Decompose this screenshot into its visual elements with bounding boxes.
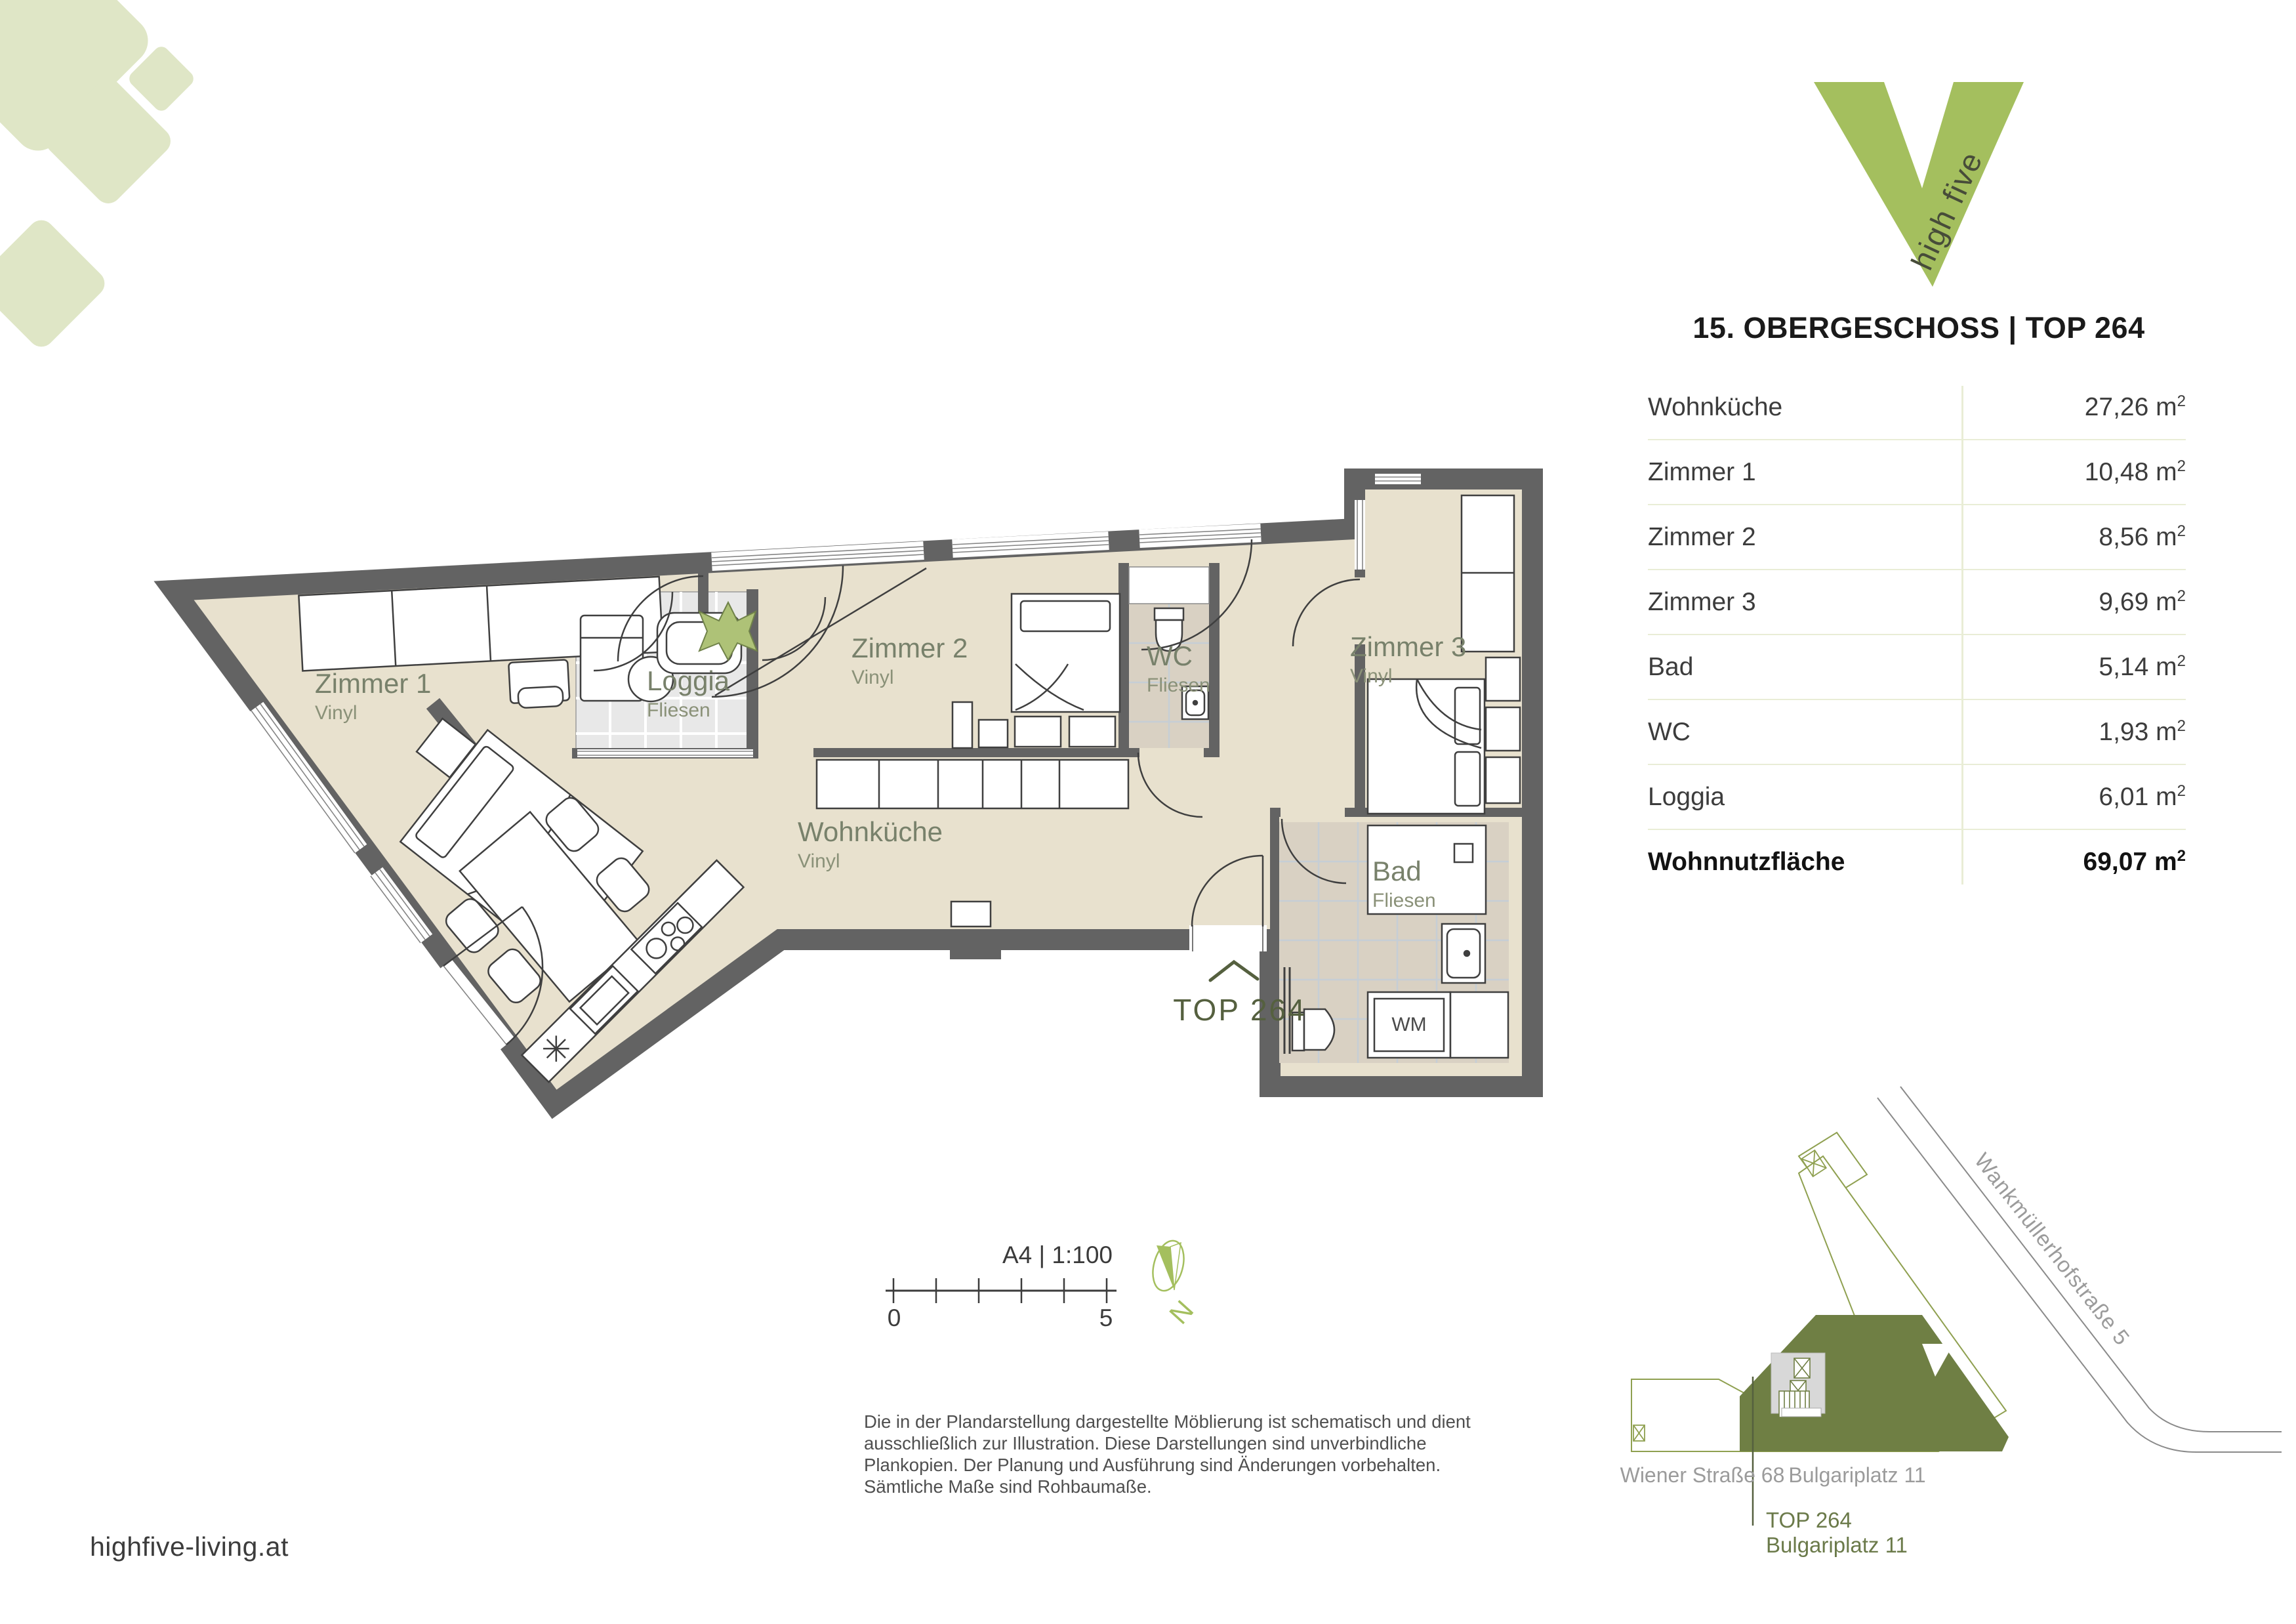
table-divider <box>1961 386 1963 885</box>
bath-sink-icon <box>1442 924 1485 983</box>
row-value: 69,07 m2 <box>2083 847 2186 877</box>
page-title: 15. OBERGESCHOSS | TOP 264 <box>1640 311 2198 345</box>
scale-start-label: 0 <box>882 1304 906 1332</box>
unit-caret-icon <box>1210 962 1258 980</box>
table-row: Bad 5,14 m2 <box>1648 634 2186 699</box>
area-table: Wohnküche 27,26 m2 Zimmer 1 10,48 m2 Zim… <box>1648 375 2186 894</box>
row-value: 1,93 m2 <box>2099 717 2186 747</box>
building-right-label: Bulgariplatz 11 <box>1771 1463 1943 1488</box>
callout-address-label: Bulgariplatz 11 <box>1766 1533 1908 1558</box>
table-row: Loggia 6,01 m2 <box>1648 764 2186 829</box>
room-label-wc: WCFliesen <box>1147 640 1210 697</box>
washing-machine-label: WM <box>1368 1014 1450 1036</box>
callout-unit-label: TOP 264 <box>1766 1508 1852 1533</box>
diamond-decor-icon <box>0 0 197 352</box>
building-plate <box>1771 1353 1825 1417</box>
sheet-scale-label: A4 | 1:100 <box>918 1241 1113 1269</box>
scale-end-label: 5 <box>1094 1304 1118 1332</box>
room-label-loggia: LoggiaFliesen <box>647 665 729 722</box>
room-label-zimmer1: Zimmer 1Vinyl <box>315 668 431 724</box>
table-row: Zimmer 2 8,56 m2 <box>1648 504 2186 569</box>
row-label: Bad <box>1648 653 1693 682</box>
plan-sheet: high five 15. OBERGESCHOSS | TOP 264 Woh… <box>0 0 2296 1624</box>
north-compass-icon <box>1148 1238 1189 1295</box>
website-link: highfive-living.at <box>90 1531 289 1562</box>
row-label: Wohnnutzfläche <box>1648 848 1845 877</box>
table-row: Zimmer 1 10,48 m2 <box>1648 439 2186 504</box>
row-value: 8,56 m2 <box>2099 522 2186 552</box>
row-label: WC <box>1648 718 1691 747</box>
row-label: Zimmer 2 <box>1648 523 1756 552</box>
row-label: Zimmer 1 <box>1648 458 1756 487</box>
row-value: 10,48 m2 <box>2085 457 2186 487</box>
row-label: Wohnküche <box>1648 393 1782 422</box>
room-label-zimmer2: Zimmer 2Vinyl <box>851 633 968 689</box>
room-label-wohnkueche: WohnkücheVinyl <box>798 816 943 873</box>
unit-label: TOP 264 <box>1141 992 1338 1028</box>
building-left-label: Wiener Straße 68 <box>1612 1463 1792 1488</box>
table-row: Wohnküche 27,26 m2 <box>1648 375 2186 439</box>
room-label-bad: BadFliesen <box>1372 856 1436 912</box>
table-total-row: Wohnnutzfläche 69,07 m2 <box>1648 829 2186 894</box>
table-row: WC 1,93 m2 <box>1648 699 2186 764</box>
row-value: 5,14 m2 <box>2099 652 2186 682</box>
kitchen-cabinets <box>817 760 1128 808</box>
row-value: 27,26 m2 <box>2085 392 2186 422</box>
apartment-plan <box>0 0 1532 1104</box>
room-label-zimmer3: Zimmer 3Vinyl <box>1350 631 1466 688</box>
row-value: 6,01 m2 <box>2099 782 2186 812</box>
row-label: Zimmer 3 <box>1648 588 1756 617</box>
table-row: Zimmer 3 9,69 m2 <box>1648 569 2186 634</box>
disclaimer-text: Die in der Plandarstellung dargestellte … <box>864 1411 1471 1497</box>
row-value: 9,69 m2 <box>2099 587 2186 617</box>
site-plan <box>1631 1087 2282 1526</box>
row-label: Loggia <box>1648 783 1725 812</box>
scale-bar <box>886 1278 1117 1303</box>
